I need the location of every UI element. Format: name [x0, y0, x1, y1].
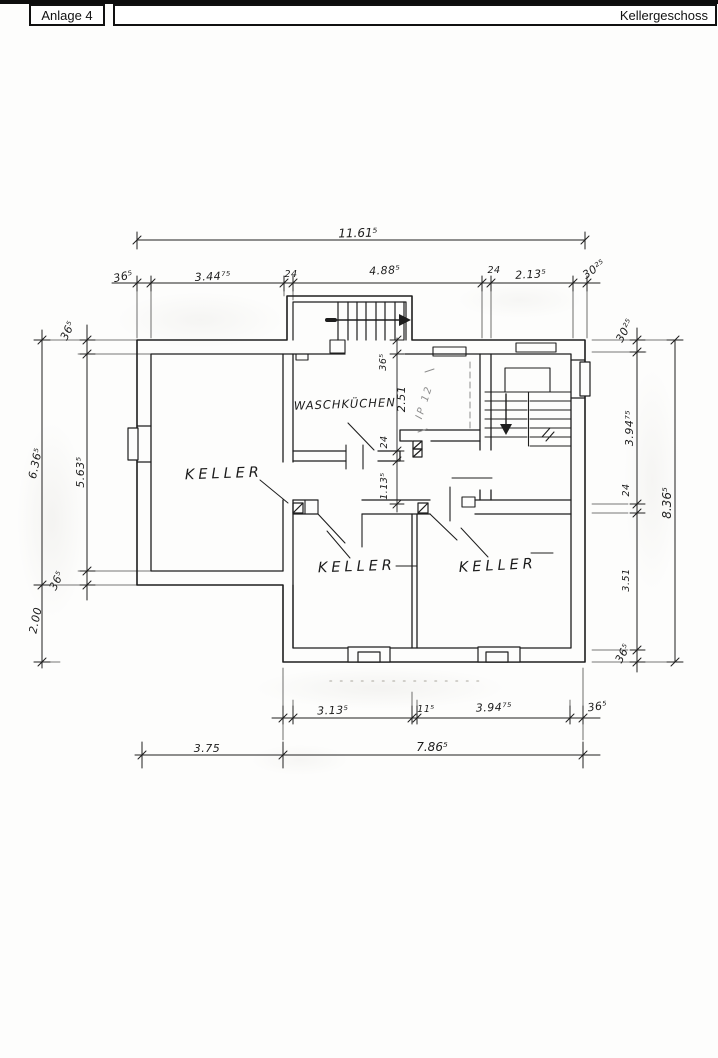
- dim-top-5: 2.13⁵: [515, 267, 547, 282]
- floor-title: Kellergeschoss: [620, 8, 708, 23]
- dim-left: [34, 325, 151, 668]
- dim-center-1: 2.51: [395, 386, 408, 413]
- dim-right-1: 3.94⁷⁵: [623, 410, 636, 446]
- window-right-wall: [571, 360, 590, 398]
- dim-center-2: 24: [379, 435, 390, 448]
- dim-center: [390, 336, 404, 512]
- room-label-keller-middle: KELLER: [318, 558, 397, 577]
- dim-top-6: 30²⁵: [580, 257, 608, 282]
- interior-stair: [485, 368, 571, 446]
- dim-top: [112, 232, 600, 338]
- floorplan-drawing: IP 12 KELLER WASCHKÜCHEN KELLER KELLER 1…: [0, 0, 718, 1058]
- attachment-label: Anlage 4: [41, 8, 92, 23]
- floor-title-box: Kellergeschoss: [113, 4, 717, 26]
- dim-top-3: 4.88⁵: [369, 263, 401, 278]
- dim-right-24: 24: [621, 483, 632, 496]
- chimney-blocks: [293, 441, 428, 513]
- room-label-waschkueche: WASCHKÜCHEN: [294, 393, 396, 413]
- dim-left-labels: 36⁵ 5.63⁵ 36⁵ 6.36⁵ 2.00: [26, 319, 87, 635]
- scanned-plan-page: Anlage 4 Kellergeschoss: [0, 0, 718, 1058]
- dim-bottom-total-1: 7.86⁵: [416, 740, 448, 754]
- dim-center-0: 36⁵: [378, 353, 389, 370]
- room-label-leaders: [260, 478, 553, 566]
- dim-top-0: 36⁵: [112, 268, 134, 285]
- exterior-stair: [327, 302, 404, 340]
- dim-top-2: 24: [284, 269, 297, 280]
- window-left-wall: [128, 426, 151, 462]
- dim-bottom-1: 11⁵: [417, 704, 434, 715]
- dim-top-1: 3.44⁷⁵: [194, 269, 231, 284]
- room-label-keller-left: KELLER: [185, 465, 264, 484]
- dim-bottom-total-0: 3.75: [194, 742, 221, 755]
- dim-top-4: 24: [487, 265, 500, 276]
- top-wall-pilasters: [296, 340, 556, 360]
- dim-top-labels: 11.61⁵ 36⁵ 3.44⁷⁵ 24 4.88⁵ 24 2.13⁵ 30²⁵: [112, 225, 608, 285]
- window-bottom-right: [478, 647, 520, 662]
- dim-bottom-3: 36⁵: [587, 699, 609, 715]
- chimney-left: [293, 503, 303, 513]
- dim-top-total: 11.61⁵: [338, 225, 378, 240]
- room-labels: KELLER WASCHKÜCHEN KELLER KELLER: [185, 393, 538, 576]
- dim-left-chain-2: 36⁵: [47, 569, 67, 593]
- dim-right-total: 8.36⁵: [660, 487, 674, 519]
- beam-label: IP 12: [414, 384, 435, 421]
- dim-bottom-labels: 3.13⁵ 11⁵ 3.94⁷⁵ 36⁵ 3.75 7.86⁵: [194, 699, 609, 755]
- chimney-middle: [418, 503, 428, 513]
- dim-right-labels: 30²⁵ 3.94⁷⁵ 3.51 24 36⁵ 8.36⁵: [612, 316, 674, 665]
- dim-left-chain-0: 36⁵: [58, 319, 78, 343]
- dim-left-chain-1: 5.63⁵: [74, 456, 87, 487]
- chimney-waschkueche: [413, 441, 422, 457]
- dim-bottom-2: 3.94⁷⁵: [476, 700, 513, 714]
- window-bottom-left: [348, 647, 390, 662]
- door-keller-right: [430, 487, 457, 540]
- room-label-keller-right: KELLER: [458, 556, 537, 576]
- door-keller-middle: [318, 514, 362, 547]
- stair-down-arrow: [500, 424, 512, 435]
- dim-bottom-0: 3.13⁵: [317, 703, 349, 717]
- exterior-stair-direction-arrow: [399, 314, 411, 326]
- door-waschkueche: [346, 423, 374, 469]
- stair-break-mark: [542, 428, 554, 441]
- dim-center-labels: 36⁵ 2.51 24 1.13⁵: [378, 353, 408, 499]
- dim-center-3: 1.13⁵: [379, 472, 390, 499]
- attachment-label-box: Anlage 4: [29, 4, 105, 26]
- dim-right-2: 3.51: [621, 568, 632, 591]
